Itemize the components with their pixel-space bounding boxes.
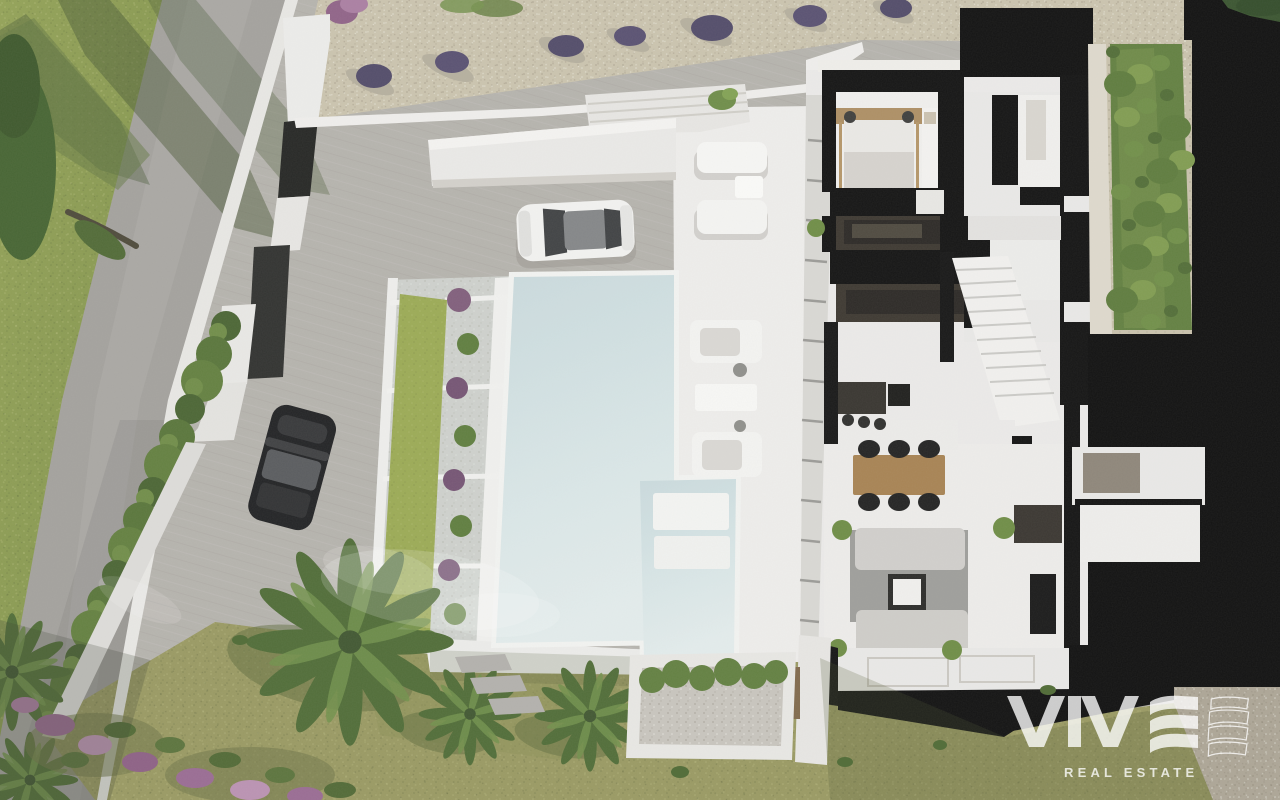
svg-text:REAL ESTATE: REAL ESTATE (1064, 765, 1198, 780)
